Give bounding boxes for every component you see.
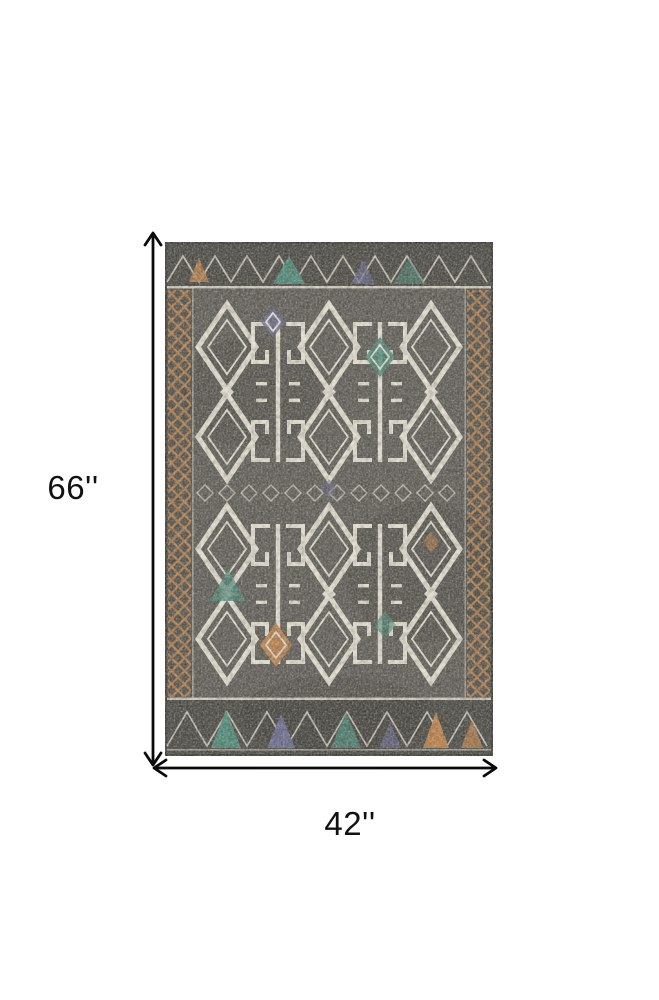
height-dimension-label: 66'' <box>26 470 120 506</box>
height-arrow-icon <box>141 229 165 769</box>
product-dimension-diagram: 66'' 42'' <box>0 0 659 1000</box>
width-dimension-label: 42'' <box>302 806 398 842</box>
width-arrow-icon <box>149 756 501 780</box>
rug-image <box>165 242 493 756</box>
